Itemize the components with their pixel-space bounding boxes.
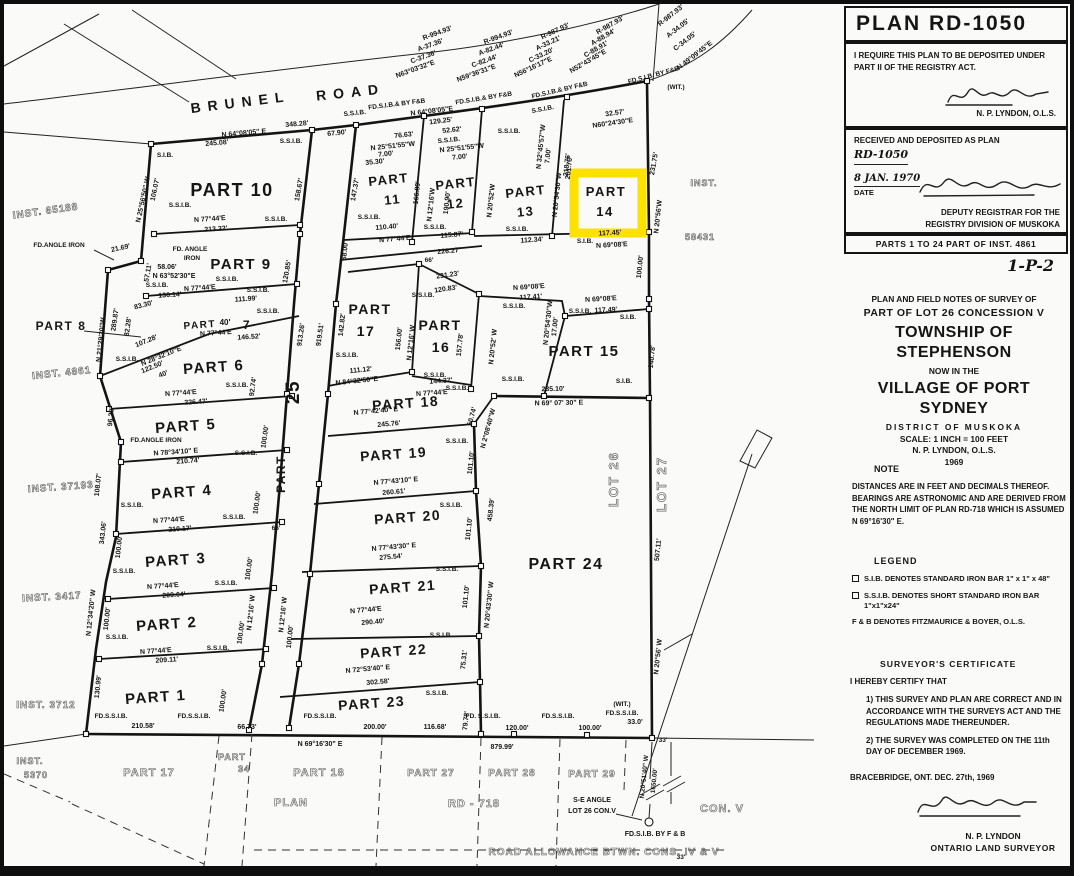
map-label: S.S.I.B. xyxy=(430,632,453,639)
map-label: PART 6 xyxy=(183,357,245,378)
map-line xyxy=(663,776,685,792)
certificate-signer-title: ONTARIO LAND SURVEYOR xyxy=(920,842,1066,854)
map-line xyxy=(4,734,86,746)
map-label: N 84°32'50"E xyxy=(335,375,379,387)
map-label: N 20°52' W xyxy=(487,328,499,365)
map-label: S.S.I.B. xyxy=(116,356,139,363)
map-label: 13 xyxy=(516,203,535,220)
lyndon-certificate-signature-icon xyxy=(910,790,1040,820)
certificate-item-1: 1) THIS SURVEY AND PLAN ARE CORRECT AND … xyxy=(866,694,1066,729)
map-label: PART 23 xyxy=(338,693,406,714)
map-label: 100.00' xyxy=(260,425,270,449)
iron-bar-marker-icon xyxy=(119,440,124,445)
map-line xyxy=(494,396,649,398)
township-title: TOWNSHIP OF STEPHENSON xyxy=(842,323,1066,363)
legend-heading: LEGEND xyxy=(874,556,1068,566)
iron-bar-marker-icon xyxy=(98,374,103,379)
map-label: 120.00' xyxy=(505,725,528,732)
iron-bar-marker-icon xyxy=(647,297,652,302)
iron-bar-marker-icon xyxy=(550,234,555,239)
iron-bar-marker-icon xyxy=(298,232,303,237)
map-label: FD.S.S.I.B. xyxy=(606,710,639,717)
map-line xyxy=(412,116,424,242)
map-label: N 69°08'E xyxy=(596,240,628,250)
map-label: S.S.I.B. xyxy=(113,568,136,575)
iron-bar-marker-icon xyxy=(650,736,655,741)
map-label: N 20°51'40" W xyxy=(638,754,651,799)
iron-bar-marker-icon xyxy=(287,726,292,731)
iron-bar-marker-icon xyxy=(317,482,322,487)
map-label: PART xyxy=(505,182,547,201)
map-label: 33' xyxy=(677,854,686,861)
map-label: 231.75' xyxy=(649,151,660,175)
district-line: DISTRICT OF MUSKOKA xyxy=(842,422,1066,433)
map-label: 106.07' xyxy=(150,177,162,201)
map-label: FD. ANGLE xyxy=(173,246,208,253)
iron-bar-marker-icon xyxy=(477,634,482,639)
map-label: 507.11' xyxy=(654,538,663,562)
legend-item-fb: F & B DENOTES FITZMAURICE & BOYER, O.L.S… xyxy=(852,617,1068,627)
iron-bar-marker-icon xyxy=(310,128,315,133)
map-label: 101.10' xyxy=(465,517,474,541)
map-label: 67.90' xyxy=(327,129,347,138)
iron-bar-marker-icon xyxy=(149,142,154,147)
iron-bar-marker-icon xyxy=(285,448,290,453)
map-line xyxy=(4,14,99,66)
map-label: 16 xyxy=(432,339,451,355)
map-label: 100.00' xyxy=(286,625,295,649)
map-label: INST. xyxy=(16,756,43,766)
survey-title-block: PLAN AND FIELD NOTES OF SURVEY OF PART O… xyxy=(842,292,1066,468)
parts-note-bar: PARTS 1 TO 24 PART OF INST. 4861 xyxy=(844,234,1068,254)
iron-bar-marker-icon xyxy=(647,396,652,401)
map-label: 40' xyxy=(158,369,170,379)
iron-bar-marker-icon xyxy=(474,489,479,494)
map-label: 213.32' xyxy=(204,225,228,234)
note-body: DISTANCES ARE IN FEET AND DECIMALS THERE… xyxy=(852,481,1066,528)
map-label: 66' xyxy=(272,525,281,532)
map-label: N 77°43'30" E xyxy=(371,541,417,553)
map-label: PART xyxy=(368,170,410,189)
map-label: 210.74' xyxy=(176,457,200,466)
map-label: PART 10 xyxy=(190,180,273,200)
survey-map: BRUNELROADN 64°08'05" E348.28'245.08'S.I… xyxy=(4,4,842,866)
part-14-highlight xyxy=(574,173,642,233)
iron-bar-marker-icon xyxy=(106,268,111,273)
map-line xyxy=(72,804,204,864)
iron-bar-marker-icon xyxy=(565,95,570,100)
map-label: PART xyxy=(218,752,246,762)
map-label: 40' xyxy=(220,318,231,327)
map-label: S.S.I.B. xyxy=(343,109,366,118)
map-label: INST. xyxy=(690,178,717,188)
iron-bar-marker-icon xyxy=(647,230,652,235)
iron-bar-marker-icon xyxy=(334,302,339,307)
scanned-plan-page: BRUNELROADN 64°08'05" E348.28'245.08'S.I… xyxy=(0,0,1074,876)
map-label: S.S.I.B. xyxy=(223,514,246,521)
iron-bar-marker-icon xyxy=(144,294,149,299)
map-label: 209.11' xyxy=(155,656,178,665)
map-label: S.S.I.B. xyxy=(207,645,230,652)
iron-bar-marker-icon xyxy=(354,123,359,128)
map-label: N60°24'30"E xyxy=(592,116,634,130)
iron-bar-marker-icon xyxy=(264,647,269,652)
map-label: 146.52' xyxy=(237,333,261,342)
certificate-place-date: BRACEBRIDGE, ONT. DEC. 27th, 1969 xyxy=(850,772,1066,784)
map-label: PART 19 xyxy=(360,444,428,465)
map-label: 115.87' xyxy=(440,231,464,240)
map-label: FD.S.S.I.B. xyxy=(542,713,575,720)
surveyors-certificate: SURVEYOR'S CERTIFICATE I HEREBY CERTIFY … xyxy=(850,658,1066,854)
iron-bar-marker-icon xyxy=(480,107,485,112)
iron-bar-marker-icon xyxy=(308,572,313,577)
map-label: 302.58' xyxy=(366,678,390,687)
map-label: PART 15 xyxy=(548,343,619,360)
legend-section: LEGEND S.I.B. DENOTES STANDARD IRON BAR … xyxy=(852,556,1068,634)
map-label: 111.12' xyxy=(349,366,372,375)
map-label: 275.54' xyxy=(379,553,403,562)
received-box: RECEIVED AND DEPOSITED AS PLAN RD-1050 8… xyxy=(844,128,1068,234)
iron-bar-marker-icon xyxy=(585,733,590,738)
map-line xyxy=(328,424,474,436)
map-label: 120.85' xyxy=(282,259,293,283)
map-label: FD.S.I.B. BY F & B xyxy=(625,831,686,838)
map-line xyxy=(86,734,652,738)
iron-bar-marker-icon xyxy=(417,262,422,267)
map-label: 83.30' xyxy=(133,300,154,312)
map-label: 14 xyxy=(596,204,613,219)
map-line xyxy=(647,81,652,738)
iron-bar-marker-icon xyxy=(563,314,568,319)
map-line xyxy=(376,737,382,866)
map-label: N 77°44'E xyxy=(379,234,412,245)
map-label: 101.10' xyxy=(462,585,471,609)
map-label: 235.10' xyxy=(541,386,565,393)
map-label: 117.49' xyxy=(594,306,617,314)
legend-item-text: F & B DENOTES FITZMAURICE & BOYER, O.L.S… xyxy=(852,617,1025,627)
map-label: FD.S.S.I.B. xyxy=(178,713,211,720)
map-label: PART 9 xyxy=(210,256,271,273)
map-label: S.S.I.B. xyxy=(257,308,280,315)
map-label: S.S.I.B. xyxy=(531,104,554,115)
map-label: S.S.I.B. xyxy=(280,138,303,145)
iron-bar-marker-icon xyxy=(410,370,415,375)
village-title: VILLAGE OF PORT SYDNEY xyxy=(842,379,1066,419)
map-label: PART 1 xyxy=(125,687,187,708)
lyndon-signature-icon xyxy=(942,82,1052,108)
map-label: PART 27 xyxy=(407,768,454,779)
iron-bar-marker-icon xyxy=(106,597,111,602)
map-label: 157.78' xyxy=(456,333,465,357)
received-date: 8 JAN. 1970 xyxy=(854,171,920,187)
plan-number: PLAN RD-1050 xyxy=(856,12,1027,36)
map-label: N 72°53'40" E xyxy=(345,663,391,675)
map-label: PART xyxy=(348,301,391,317)
iron-bar-marker-icon xyxy=(139,259,144,264)
map-label: S.S.I.B. xyxy=(446,385,469,392)
map-line xyxy=(653,4,659,81)
map-label: 343.06' xyxy=(99,521,108,545)
map-label: PART 29 xyxy=(568,769,615,780)
map-label: S.I.B. xyxy=(577,238,593,245)
iron-bar-marker-icon xyxy=(152,232,157,237)
map-label: 34 xyxy=(238,764,250,774)
certificate-heading: SURVEYOR'S CERTIFICATE xyxy=(880,658,1066,670)
map-label: 112.34' xyxy=(520,236,543,245)
map-label: 58.06' xyxy=(157,264,177,271)
certificate-signer-name: N. P. LYNDON xyxy=(920,830,1066,842)
map-label: S.S.I.B. xyxy=(121,502,144,509)
map-label: 5370 xyxy=(24,770,48,780)
map-label: S.S.I.B. xyxy=(106,634,129,641)
map-label: 130.99' xyxy=(94,675,103,699)
map-label: PART 5 xyxy=(155,416,217,437)
map-line xyxy=(204,736,219,866)
map-label: N 69°08'E xyxy=(513,282,546,292)
map-label: 156.00' xyxy=(395,327,404,351)
map-label: FD. S.S.I.B. xyxy=(466,713,501,720)
map-label: 21.69' xyxy=(111,243,132,254)
map-label: LOT 26 CON.V xyxy=(568,808,616,815)
iron-bar-marker-icon xyxy=(479,732,484,737)
note-section: NOTE DISTANCES ARE IN FEET AND DECIMALS … xyxy=(852,464,1066,528)
map-label: ROAD xyxy=(315,80,386,103)
map-label: S.I.B. xyxy=(157,152,173,159)
deposit-statement-box: I REQUIRE THIS PLAN TO BE DEPOSITED UNDE… xyxy=(844,42,1068,128)
square-bullet-icon xyxy=(852,592,859,599)
map-label: 58431 xyxy=(685,232,715,242)
map-label: PART 21 xyxy=(369,577,437,598)
map-label: 140.78' xyxy=(648,345,657,369)
map-line xyxy=(472,109,482,232)
map-label: 79.78' xyxy=(462,711,471,731)
map-label: N 12°16' W xyxy=(405,324,417,361)
map-label: N 20°56' W xyxy=(652,638,664,675)
map-label: N 20°43'30" W xyxy=(483,581,496,629)
map-label: 92.74' xyxy=(249,376,259,396)
iron-bar-marker-icon xyxy=(97,657,102,662)
map-label: PART 24 xyxy=(528,556,603,573)
map-label: PART 2 xyxy=(136,614,198,635)
map-label: PART xyxy=(435,174,477,193)
map-label: N 12°34'20" W xyxy=(85,589,98,637)
map-label: PART 3 xyxy=(145,550,207,571)
map-label: PART xyxy=(586,184,626,199)
map-label: PART 17 xyxy=(123,767,174,779)
map-label: 210.17' xyxy=(168,525,192,534)
map-label: 100.00' xyxy=(244,557,254,581)
map-line xyxy=(116,522,282,534)
map-label: S.S.I.B. xyxy=(440,502,463,509)
title-line-4: NOW IN THE xyxy=(842,366,1066,377)
map-label: 32.57' xyxy=(605,109,625,119)
map-label: (WIT.) xyxy=(667,84,684,91)
map-label: N 77°43'10" E xyxy=(373,475,419,487)
map-label: S.S.I.B. xyxy=(146,282,169,289)
iron-bar-marker-icon xyxy=(260,662,265,667)
map-label: 100.00' xyxy=(103,607,112,631)
map-label: S.S.I.B. xyxy=(235,450,258,457)
map-line xyxy=(616,814,642,820)
map-label: 35.30' xyxy=(365,158,385,167)
map-label: 7.00' xyxy=(544,148,553,164)
map-label: 52.62' xyxy=(442,126,462,135)
map-label: N 63°52'30"E xyxy=(153,272,196,280)
map-line xyxy=(99,649,266,659)
map-label: 116.68' xyxy=(424,724,447,731)
map-label: S.S.I.B. xyxy=(169,202,192,209)
iron-bar-marker-icon xyxy=(119,460,124,465)
map-label: 17.00' xyxy=(551,317,560,337)
map-label: S.S.I.B. xyxy=(503,303,526,310)
iron-bar-marker-icon xyxy=(469,387,474,392)
map-line xyxy=(132,10,236,79)
map-label: N 12°16' W xyxy=(245,594,257,631)
map-label: INST. 4861 xyxy=(32,365,92,382)
received-statement: RECEIVED AND DEPOSITED AS PLAN xyxy=(854,136,1000,145)
map-label: PART xyxy=(418,317,461,333)
map-label: S.S.I.B. xyxy=(569,308,592,315)
certificate-item-2: 2) THE SURVEY WAS COMPLETED ON THE 11th … xyxy=(866,735,1066,758)
map-label: 82.28' xyxy=(124,316,134,336)
map-label: RD - 718 xyxy=(448,798,500,810)
scale-line: SCALE: 1 INCH = 100 FEET xyxy=(842,434,1066,445)
map-label: 100.00' xyxy=(636,255,645,279)
map-label: 7 xyxy=(243,318,251,332)
map-label: N 77°44'E xyxy=(147,581,180,591)
map-label: S.S.I.B. xyxy=(437,136,460,145)
map-label: 1650.00' xyxy=(650,768,660,794)
map-label: PART 4 xyxy=(151,482,213,503)
map-label: 100.00' xyxy=(236,621,246,645)
iron-bar-marker-icon xyxy=(479,564,484,569)
map-label: 25 xyxy=(283,380,304,404)
legend-item-text: S.S.I.B. DENOTES SHORT STANDARD IRON BAR… xyxy=(864,591,1068,611)
map-label: CON. V xyxy=(700,803,744,815)
map-label: 110.40' xyxy=(375,223,399,232)
map-label: S.S.I.B. xyxy=(358,214,381,221)
registrar-line1: DEPUTY REGISTRAR FOR THE xyxy=(854,207,1060,219)
map-label: FD.ANGLE IRON xyxy=(130,437,182,444)
map-line xyxy=(340,246,482,260)
legend-item-sib: S.I.B. DENOTES STANDARD IRON BAR 1" x 1"… xyxy=(852,574,1068,584)
map-label: 226.47' xyxy=(184,398,208,407)
iron-bar-marker-icon xyxy=(478,680,483,685)
map-label: S.S.I.B. xyxy=(226,382,249,389)
map-label: S.S.I.B. xyxy=(216,276,239,283)
map-label: S.S.I.B. xyxy=(215,580,238,587)
map-label: S.S.I.B. xyxy=(412,292,435,299)
map-label: 66.73' xyxy=(237,724,257,731)
iron-bar-marker-icon xyxy=(298,223,303,228)
map-label: S.S.I.B. xyxy=(446,438,469,445)
map-label: INST. 3417 xyxy=(22,590,82,604)
angle-point-marker-icon xyxy=(645,818,653,826)
legend-item-ssib: S.S.I.B. DENOTES SHORT STANDARD IRON BAR… xyxy=(852,591,1068,611)
title-line-2: PART OF LOT 26 CONCESSION V xyxy=(842,307,1066,320)
map-label: N 77°44'E xyxy=(165,388,198,398)
iron-bar-marker-icon xyxy=(470,230,475,235)
map-label: 33' xyxy=(659,737,668,744)
map-label: S.S.I.B. xyxy=(424,224,447,231)
map-label: 100.00' xyxy=(252,491,262,515)
map-label: 66' xyxy=(425,257,434,264)
map-label: N 20°56'W xyxy=(652,199,664,234)
map-label: N 77°44'E xyxy=(416,388,449,398)
map-label: 147.37' xyxy=(350,177,361,201)
map-label: IRON xyxy=(184,255,201,262)
map-label: BRUNEL xyxy=(190,88,292,116)
map-label: FD.ANGLE IRON xyxy=(33,242,85,249)
map-label: N 78°34'10" E xyxy=(153,446,199,457)
page-reference: 1-P-2 xyxy=(1007,256,1054,275)
map-label: S.S.I.B. xyxy=(336,352,359,359)
map-label: 17 xyxy=(357,323,376,339)
map-label: 245.76' xyxy=(377,420,401,429)
certificate-intro: I HEREBY CERTIFY THAT xyxy=(850,676,1066,688)
plan-sheet: BRUNELROADN 64°08'05" E348.28'245.08'S.I… xyxy=(4,4,1070,866)
title-line-1: PLAN AND FIELD NOTES OF SURVEY OF xyxy=(842,294,1066,305)
surveyor-line: N. P. LYNDON, O.L.S. xyxy=(842,445,1066,456)
iron-bar-marker-icon xyxy=(84,732,89,737)
iron-bar-marker-icon xyxy=(272,586,277,591)
map-line xyxy=(121,450,287,462)
iron-bar-marker-icon xyxy=(326,392,331,397)
map-label: 260.61' xyxy=(382,488,406,497)
legend-item-text: S.I.B. DENOTES STANDARD IRON BAR 1" x 1"… xyxy=(864,574,1050,584)
iron-bar-marker-icon xyxy=(647,307,652,312)
map-label: 919.51' xyxy=(315,323,325,347)
received-plan-number: RD-1050 xyxy=(854,147,908,165)
map-label: 226.27' xyxy=(437,247,461,256)
map-label: FD.S.S.I.B. xyxy=(304,713,337,720)
map-label: 76.63' xyxy=(394,131,414,140)
map-label: S.S.I.B. xyxy=(247,287,270,294)
square-bullet-icon xyxy=(852,575,859,582)
map-label: FD.S.S.I.B. xyxy=(95,713,128,720)
map-label: 108.07' xyxy=(94,473,103,497)
map-label: N 12°16'W xyxy=(425,187,437,222)
map-label: 129.25' xyxy=(429,117,453,127)
map-line xyxy=(348,264,419,272)
map-label: PLAN xyxy=(274,797,308,809)
map-label: 68.00' xyxy=(341,241,350,261)
map-label: N 20°54'30"W xyxy=(551,172,564,218)
map-label: 210.58' xyxy=(131,723,154,730)
map-label: 209.64' xyxy=(162,591,186,600)
plan-number-box: PLAN RD-1050 xyxy=(844,6,1068,42)
map-label: 200.00' xyxy=(363,724,386,731)
date-label: DATE xyxy=(854,188,874,197)
deposit-signer-name: N. P. LYNDON, O.L.S. xyxy=(976,108,1056,120)
map-label: 11 xyxy=(383,191,401,208)
map-label: N 20°52'W xyxy=(485,183,497,218)
map-label: PART 22 xyxy=(360,641,428,662)
map-label: 117.45' xyxy=(598,229,621,237)
map-label: 289.87' xyxy=(110,308,120,332)
map-label: S.S.I.B. xyxy=(426,690,449,697)
map-label: S.I.B. xyxy=(620,314,636,321)
map-label: S.S.I.B. xyxy=(498,128,521,135)
map-label: INST. 3712 xyxy=(16,700,75,711)
map-label: 166.89' xyxy=(413,181,422,205)
map-label: 913.26' xyxy=(296,323,306,347)
map-label: 290.40' xyxy=(361,618,385,627)
deposit-statement: I REQUIRE THIS PLAN TO BE DEPOSITED UNDE… xyxy=(854,51,1045,72)
map-line xyxy=(624,740,626,790)
map-line xyxy=(4,132,151,144)
map-label: N 69° 07' 30" E xyxy=(535,399,584,408)
